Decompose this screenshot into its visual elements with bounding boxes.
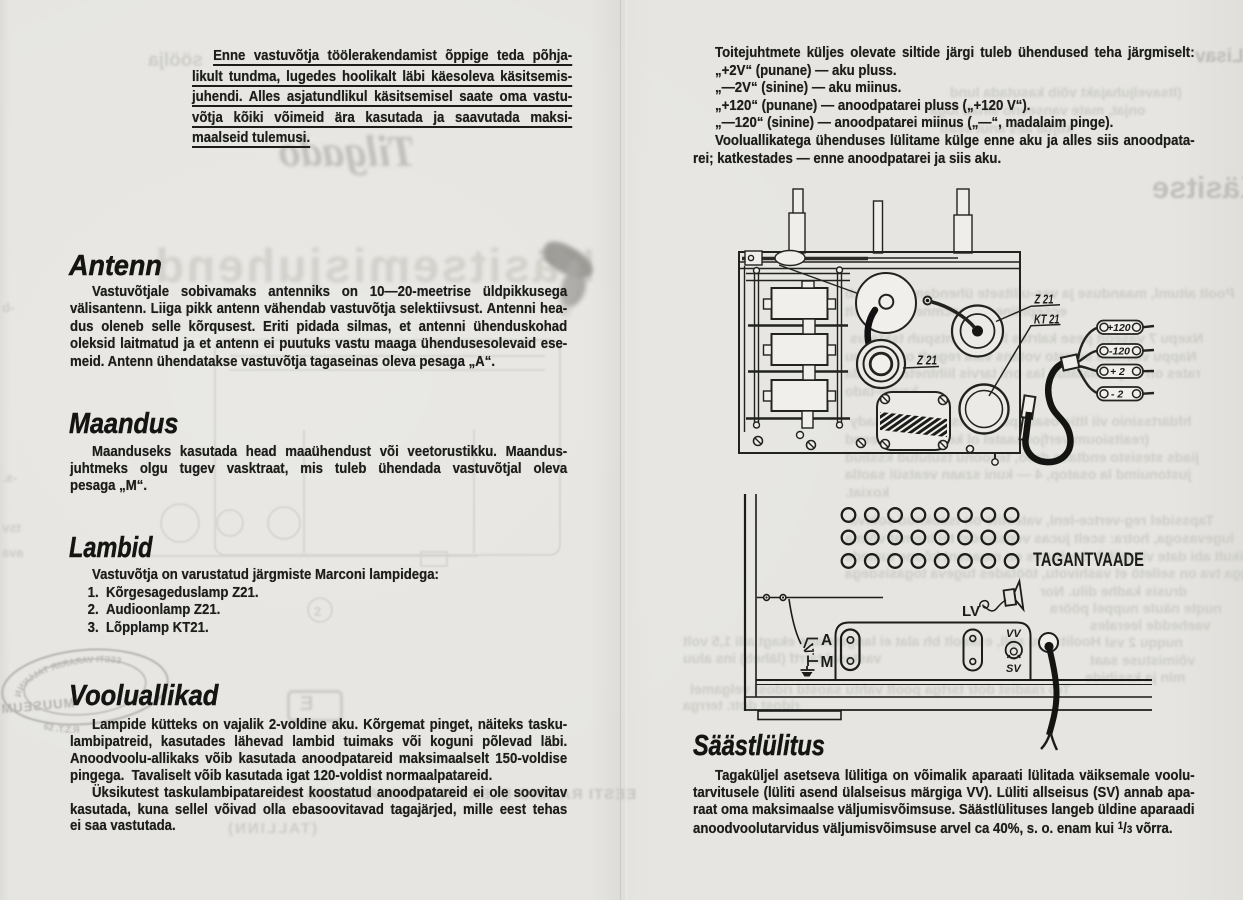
svg-text:SV: SV <box>1006 663 1022 675</box>
svg-text:- 2: - 2 <box>1111 389 1123 401</box>
svg-text:TAGANTVAADE: TAGANTVAADE <box>1033 550 1144 571</box>
svg-text:LV: LV <box>962 603 980 620</box>
svg-text:-120: -120 <box>1109 346 1130 358</box>
svg-text:Z 21: Z 21 <box>1034 292 1054 307</box>
svg-text:+120: +120 <box>1107 322 1131 334</box>
svg-text:M: M <box>821 654 834 671</box>
svg-text:MUUSEUM: MUUSEUM <box>0 695 75 716</box>
svg-text:Z 21: Z 21 <box>916 353 937 368</box>
svg-text:A: A <box>821 632 832 649</box>
svg-text:+ 2: + 2 <box>1110 366 1125 378</box>
svg-text:KT 21: KT 21 <box>1034 312 1060 327</box>
svg-text:VV: VV <box>1006 628 1022 640</box>
